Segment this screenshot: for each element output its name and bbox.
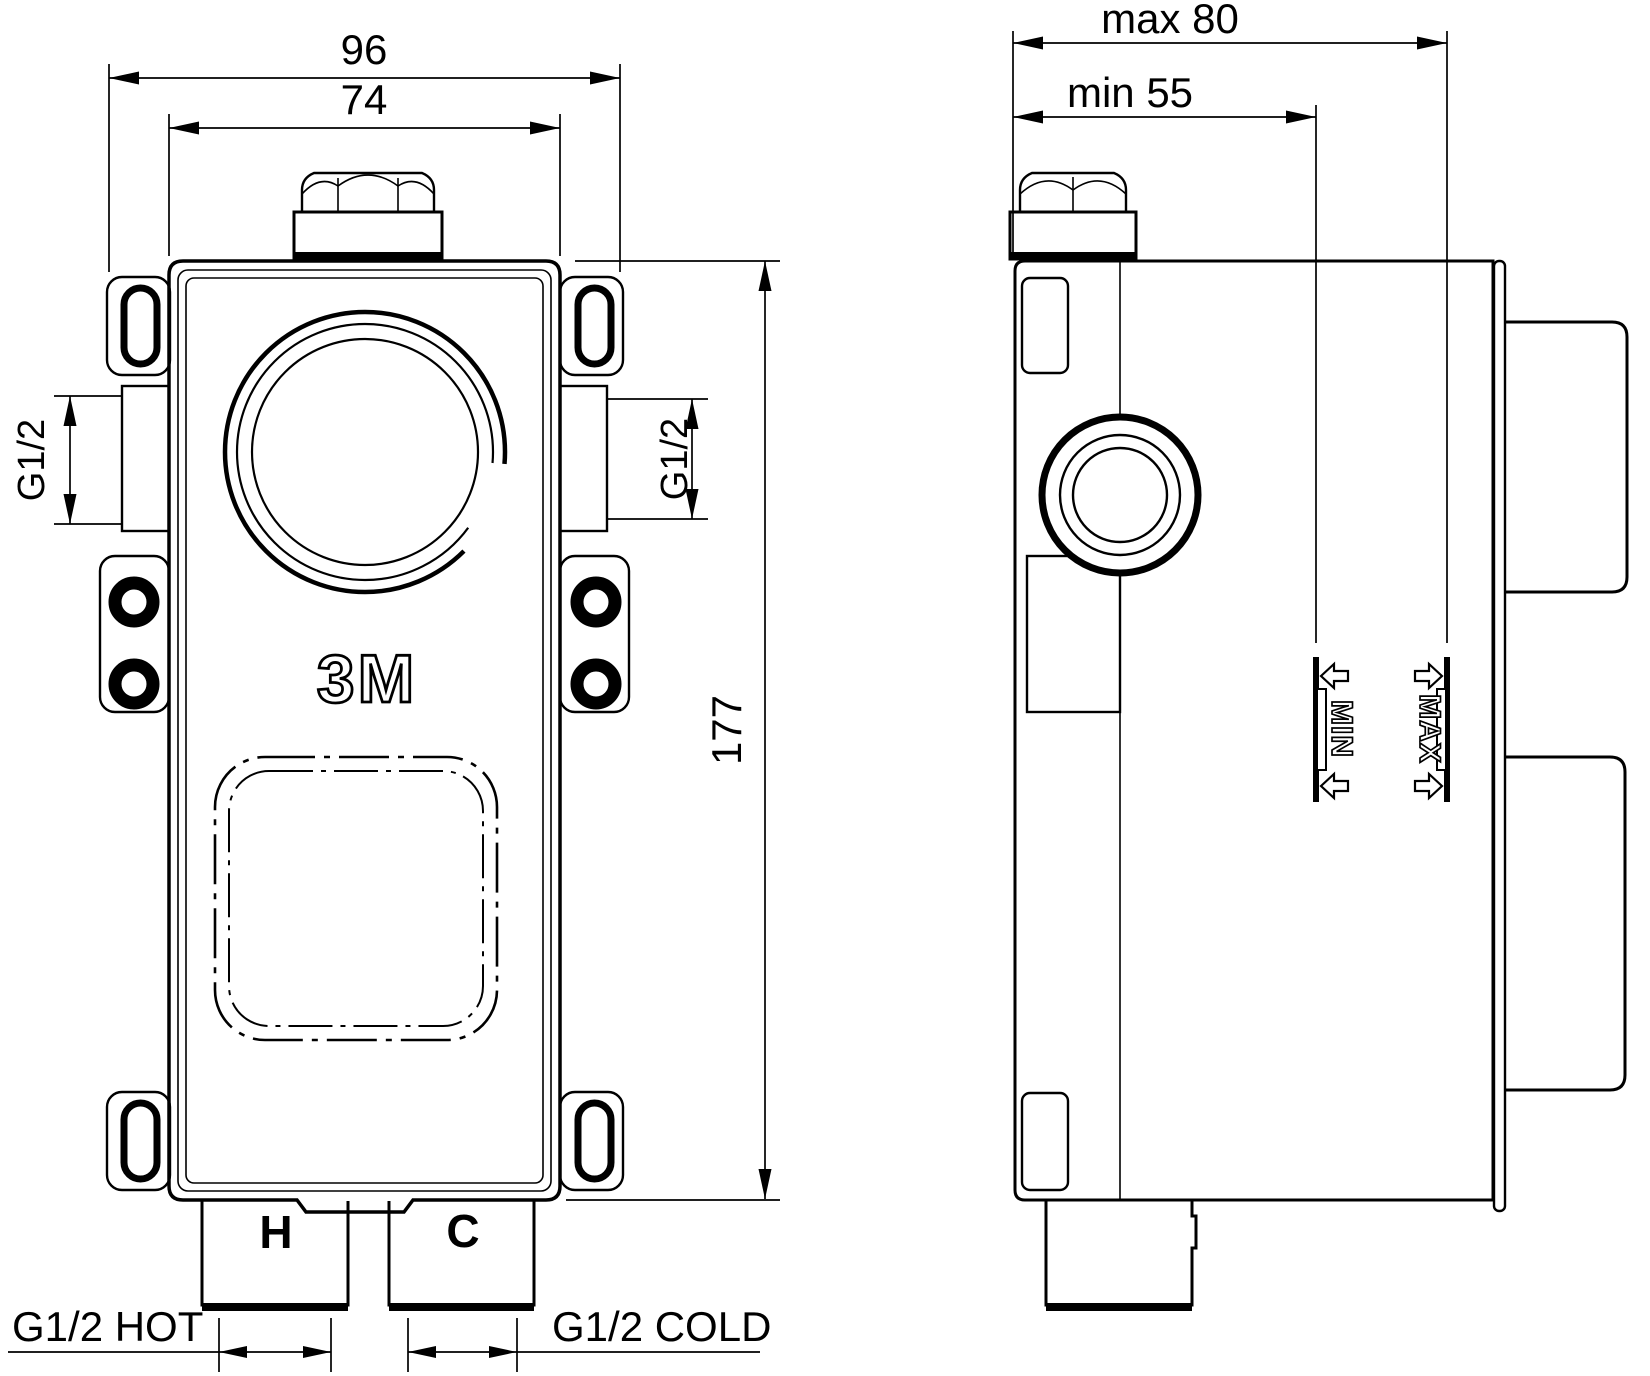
- opening-ring-middle: [237, 324, 493, 580]
- dim-177: 177: [566, 261, 780, 1200]
- min-plate: [1317, 689, 1326, 770]
- screw-hole: [115, 583, 153, 621]
- dim-74-text: 74: [341, 76, 388, 123]
- slot-bottom-left: [124, 1103, 157, 1179]
- rear-port-top: [1505, 322, 1627, 592]
- screw-hole: [577, 583, 615, 621]
- max-arrow-icon: [1415, 664, 1442, 688]
- recess-outer: [215, 757, 497, 1040]
- boss-right: [560, 386, 607, 531]
- min-arrow-icon: [1321, 774, 1348, 798]
- side-dimensions: max 80 min 55: [1013, 0, 1447, 255]
- plug-collar-side: [1010, 212, 1136, 259]
- rear-port-bottom: [1505, 757, 1625, 1090]
- max-arrow-icon: [1415, 774, 1442, 798]
- slot-bottom-right: [578, 1103, 611, 1179]
- bottom-connections: H C: [202, 1201, 534, 1307]
- dim-cold: G1/2 COLD: [408, 1303, 771, 1372]
- drawing-canvas: 3M H C 96 7: [0, 0, 1650, 1376]
- dim-74: 74: [169, 76, 560, 256]
- g12-right-text: G1/2: [654, 418, 696, 500]
- front-view: 3M H C: [100, 173, 629, 1307]
- technical-drawing: 3M H C 96 7: [0, 0, 1650, 1376]
- side-fixing-tab: [1027, 556, 1120, 712]
- dim-g12-right: G1/2: [607, 399, 708, 519]
- side-ear-top: [1022, 278, 1068, 373]
- cold-label: G1/2 COLD: [552, 1303, 771, 1350]
- slot-top-right: [578, 288, 611, 364]
- dim-max-80: max 80: [1013, 0, 1447, 255]
- min-arrow-icon: [1321, 664, 1348, 688]
- cartridge-opening: [225, 312, 505, 592]
- hex-plug-side: [1010, 173, 1136, 259]
- dim-hot: G1/2 HOT: [8, 1303, 331, 1372]
- dim-g12-left: G1/2: [11, 396, 123, 524]
- logo-text: 3M: [317, 641, 417, 717]
- dim-min55-text: min 55: [1067, 69, 1193, 116]
- side-view: MIN MAX: [1010, 31, 1627, 1307]
- side-port: [1042, 417, 1198, 573]
- valve-body-outline: [169, 261, 560, 1212]
- boss-left: [122, 386, 169, 531]
- cold-mark: C: [446, 1205, 479, 1257]
- plaster-markers: MIN MAX: [1316, 31, 1447, 802]
- dim-96-text: 96: [341, 26, 388, 73]
- hot-label: G1/2 HOT: [12, 1303, 203, 1350]
- hex-plug-front: [294, 173, 442, 259]
- hex-nut: [302, 173, 434, 212]
- mounting-ears: [107, 277, 623, 1190]
- plug-collar: [294, 212, 442, 259]
- hex-facets: [338, 178, 398, 212]
- min-text: MIN: [1325, 700, 1358, 758]
- dim-96: 96: [109, 26, 620, 272]
- dim-177-text: 177: [703, 695, 750, 765]
- hex-crown: [302, 175, 434, 194]
- opening-ring-inner: [252, 339, 478, 565]
- opening-ring-outer: [225, 312, 505, 592]
- hot-mark: H: [259, 1206, 292, 1258]
- side-ear-bottom: [1022, 1093, 1068, 1190]
- dim-min-55: min 55: [1013, 69, 1316, 124]
- max-text: MAX: [1413, 694, 1446, 764]
- g12-left-text: G1/2: [11, 419, 53, 501]
- back-plate: [1494, 261, 1505, 1211]
- screw-hole: [577, 665, 615, 703]
- dim-max80-text: max 80: [1101, 0, 1239, 42]
- screw-hole: [115, 665, 153, 703]
- body-inner-line-2: [186, 278, 543, 1183]
- recess-inner: [229, 771, 483, 1026]
- slot-top-left: [124, 288, 157, 364]
- side-bottom-block: [1046, 1201, 1196, 1305]
